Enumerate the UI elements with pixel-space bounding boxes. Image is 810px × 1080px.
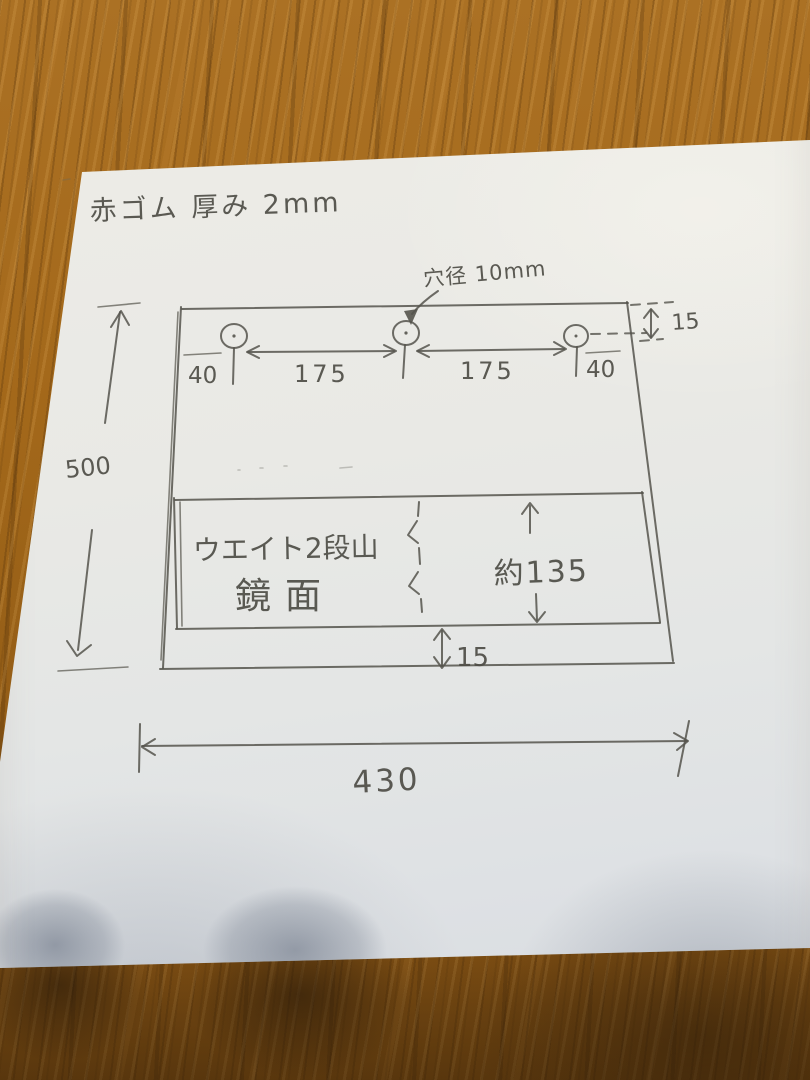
dim-label-inner-height: 約135 bbox=[493, 554, 589, 592]
dim-label-sheet-width: 430 bbox=[352, 761, 422, 801]
dim-label-hole-offset-top: 15 bbox=[671, 309, 701, 336]
pencil-drawing: 赤ゴム 厚み 2mm 穴径 10mm bbox=[0, 0, 810, 1080]
dim-label-edge-right: 40 bbox=[586, 357, 615, 383]
strip-label-line1: ウエイト2段山 bbox=[193, 531, 379, 567]
strip-label-line2: 鏡面 bbox=[235, 576, 335, 617]
photo-of-sketch: 赤ゴム 厚み 2mm 穴径 10mm bbox=[0, 0, 810, 1080]
title-note: 赤ゴム 厚み 2mm bbox=[89, 187, 342, 227]
hole-note-leader-arrow bbox=[404, 291, 438, 325]
hole-center bbox=[393, 321, 419, 378]
break-line bbox=[408, 502, 422, 612]
dim-label-spacing-left: 175 bbox=[294, 360, 349, 388]
dim-label-sheet-height: 500 bbox=[64, 451, 112, 484]
dim-label-strip-gap: 15 bbox=[456, 643, 489, 673]
hole-right bbox=[564, 325, 588, 376]
dimension-strip-gap bbox=[434, 629, 450, 668]
hole-diameter-note: 穴径 10mm bbox=[422, 256, 547, 291]
dimension-sheet-height bbox=[58, 303, 140, 671]
dim-label-edge-left: 40 bbox=[188, 363, 217, 389]
hole-left bbox=[221, 324, 247, 384]
dim-label-spacing-right: 175 bbox=[460, 357, 515, 385]
